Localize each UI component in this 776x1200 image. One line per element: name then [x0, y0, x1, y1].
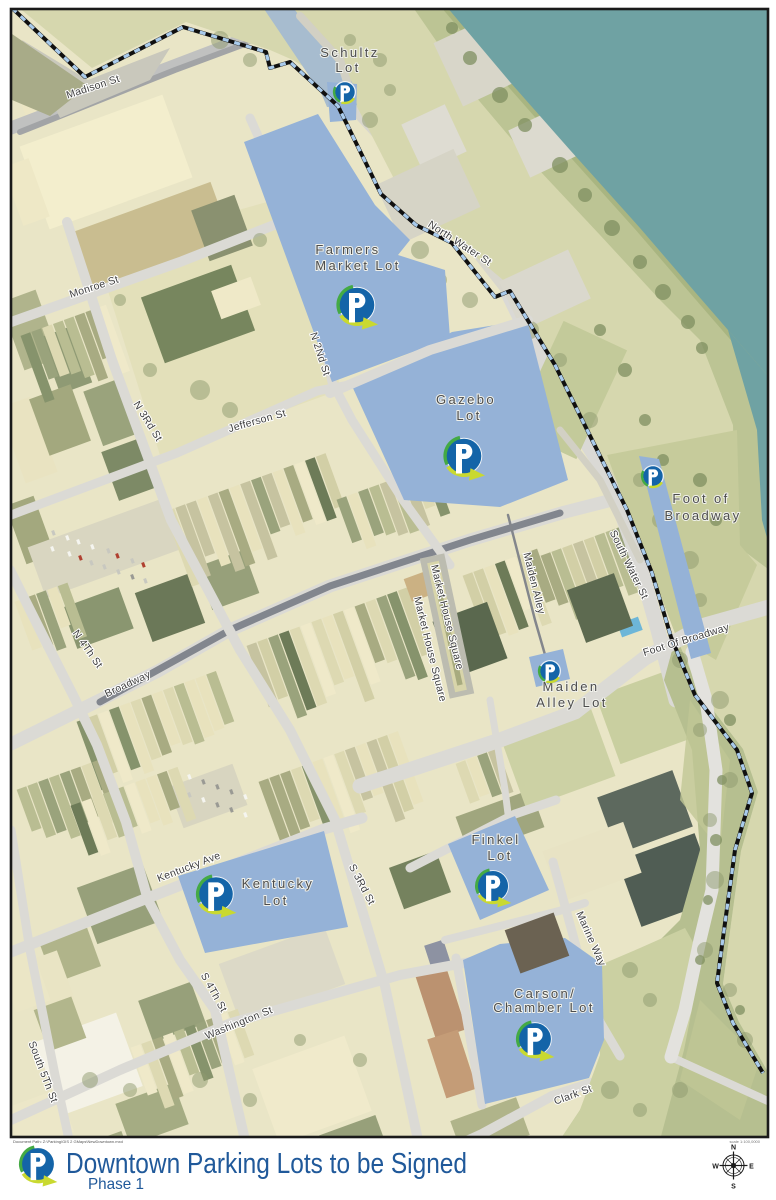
svg-text:N: N — [731, 1145, 736, 1152]
svg-text:E: E — [749, 1164, 754, 1171]
svg-text:Kentucky: Kentucky — [242, 876, 315, 891]
svg-text:Lot: Lot — [487, 848, 512, 863]
svg-text:Lot: Lot — [263, 893, 288, 908]
svg-text:Market Lot: Market Lot — [315, 258, 400, 273]
svg-text:Document Path: Z:\Parking\GIS: Document Path: Z:\Parking\GIS 2 GMaps\Ne… — [13, 1139, 123, 1144]
svg-text:Farmers: Farmers — [315, 242, 380, 257]
svg-text:Phase 1: Phase 1 — [88, 1176, 144, 1193]
svg-text:W: W — [712, 1164, 719, 1171]
svg-text:Chamber Lot: Chamber Lot — [493, 1000, 595, 1015]
svg-text:scale 1:100,0000: scale 1:100,0000 — [730, 1139, 761, 1144]
svg-text:Schultz: Schultz — [320, 45, 379, 60]
svg-text:Carson/: Carson/ — [514, 986, 576, 1001]
svg-text:Broadway: Broadway — [664, 508, 741, 523]
svg-text:S: S — [731, 1184, 736, 1191]
svg-text:Lot: Lot — [335, 60, 360, 75]
svg-text:Alley Lot: Alley Lot — [536, 695, 607, 710]
svg-text:Finkel: Finkel — [471, 832, 520, 847]
svg-text:Lot: Lot — [456, 408, 481, 423]
svg-text:Foot of: Foot of — [672, 491, 729, 506]
svg-text:Gazebo: Gazebo — [436, 392, 496, 407]
